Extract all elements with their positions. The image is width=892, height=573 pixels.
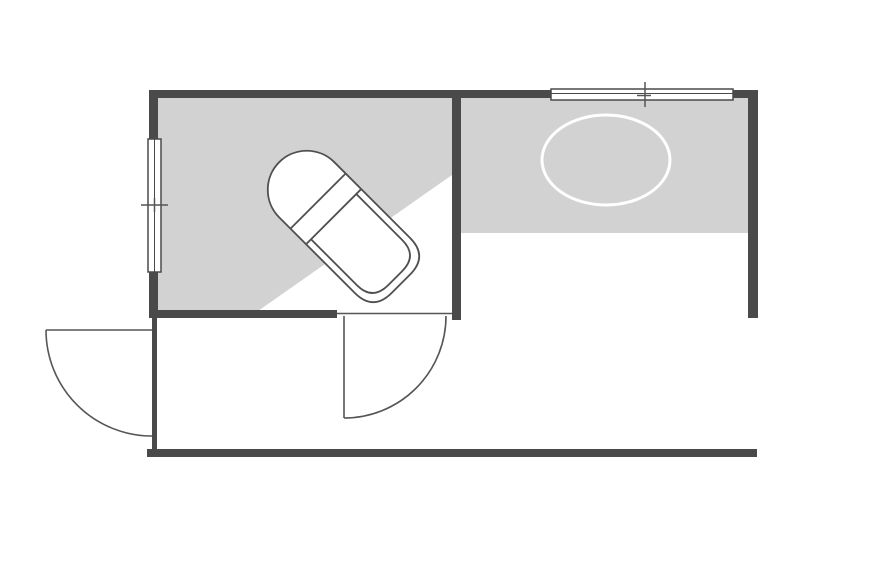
door-left-swing-arc [46, 330, 152, 436]
window-top-frame [551, 89, 733, 100]
floor-plan [0, 0, 892, 573]
wall-lower-left-thin [152, 318, 157, 449]
wall-divider [452, 90, 461, 320]
wall-bottom-left-room [149, 310, 337, 318]
floor-plan-canvas [0, 0, 892, 573]
wall-top-left [149, 90, 551, 98]
wall-left-upper [149, 90, 158, 139]
wall-right [748, 90, 758, 318]
floor-right-room [461, 98, 748, 233]
door-middle-swing-arc [344, 316, 446, 418]
wall-bottom [147, 449, 757, 457]
